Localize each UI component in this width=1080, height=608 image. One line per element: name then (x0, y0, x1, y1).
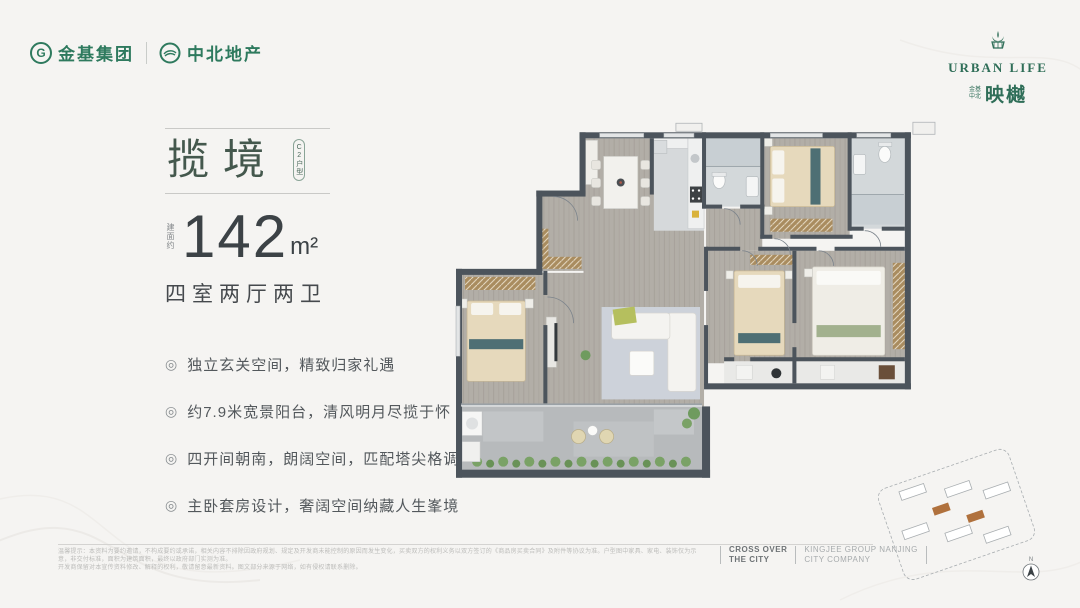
feature-text: 主卧套房设计，奢阔空间纳藏人生峯境 (187, 495, 459, 516)
info-panel: 揽境 C2户型 建面约 142 m² 四室两厅两卫 ◎ 独立玄关空间，精致归家礼… (165, 128, 435, 542)
svg-text:N: N (1029, 557, 1033, 563)
bullet-icon: ◎ (165, 450, 178, 467)
highlighted-buildings (932, 493, 985, 533)
logo-jinji: G 金基集团 (30, 40, 134, 65)
feature-item: ◎ 主卧套房设计，奢阔空间纳藏人生峯境 (165, 495, 435, 516)
unit-type-badge: C2户型 (293, 139, 305, 181)
bullet-icon: ◎ (165, 403, 178, 420)
slogan-bar (795, 546, 796, 564)
compass-icon: N (1023, 557, 1039, 580)
room-layout: 四室两厅两卫 (165, 278, 435, 308)
jinji-logo-text: 金基集团 (58, 40, 134, 65)
logo-zhongbei: 中北地产 (159, 40, 263, 65)
page-title: 揽境 (167, 139, 279, 181)
project-name: 映樾 (985, 80, 1027, 107)
feature-text: 约7.9米宽景阳台，清风明月尽揽于怀 (187, 401, 451, 422)
bullet-icon: ◎ (165, 356, 178, 373)
feature-text: 独立玄关空间，精致归家礼遇 (187, 354, 395, 375)
disclaimer-line2: 开发商保留对本宣传资料修改、解释的权利，敬请留意最新资料。图文部分来源于网络，如… (58, 564, 703, 572)
bottom-rule (165, 193, 330, 194)
project-brand: URBAN LIFE 金基 中北 映樾 (938, 28, 1058, 107)
feature-item: ◎ 约7.9米宽景阳台，清风明月尽揽于怀 (165, 401, 435, 422)
slogan-bar (720, 546, 721, 564)
floor-plan (453, 110, 940, 497)
disclaimer-line1: 温馨提示：本资料为要约邀请，不构成要约或承诺，相关内容不排除因政府规划、规定及开… (58, 548, 703, 564)
jinji-logo-icon: G (30, 42, 52, 64)
feature-item: ◎ 四开间朝南，朗阔空间，匹配塔尖格调 (165, 448, 435, 469)
slogan-text: CROSS OVER THE CITY (729, 545, 787, 565)
header-separator (146, 42, 147, 64)
area-row: 建面约 142 m² (165, 210, 435, 264)
area-unit: m² (290, 233, 318, 261)
bullet-icon: ◎ (165, 497, 178, 514)
lotus-icon (986, 28, 1010, 52)
zhongbei-logo-text: 中北地产 (187, 40, 263, 65)
disclaimer: 温馨提示：本资料为要约邀请，不构成要约或承诺，相关内容不排除因政府规划、规定及开… (58, 548, 703, 572)
site-plan: N (878, 448, 1048, 598)
subbrand-row: 金基 中北 映樾 (938, 80, 1058, 107)
feature-list: ◎ 独立玄关空间，精致归家礼遇 ◎ 约7.9米宽景阳台，清风明月尽揽于怀 ◎ 四… (165, 354, 435, 516)
subbrand-small-text: 金基 中北 (969, 87, 981, 101)
area-prefix: 建面约 (165, 223, 176, 250)
zhongbei-logo-icon (159, 42, 181, 64)
header-logos: G 金基集团 中北地产 (30, 40, 263, 65)
balcony-glass-line (461, 405, 702, 406)
urban-life-text: URBAN LIFE (938, 60, 1058, 76)
feature-item: ◎ 独立玄关空间，精致归家礼遇 (165, 354, 435, 375)
area-value: 142 (182, 210, 288, 264)
feature-text: 四开间朝南，朗阔空间，匹配塔尖格调 (187, 448, 459, 469)
